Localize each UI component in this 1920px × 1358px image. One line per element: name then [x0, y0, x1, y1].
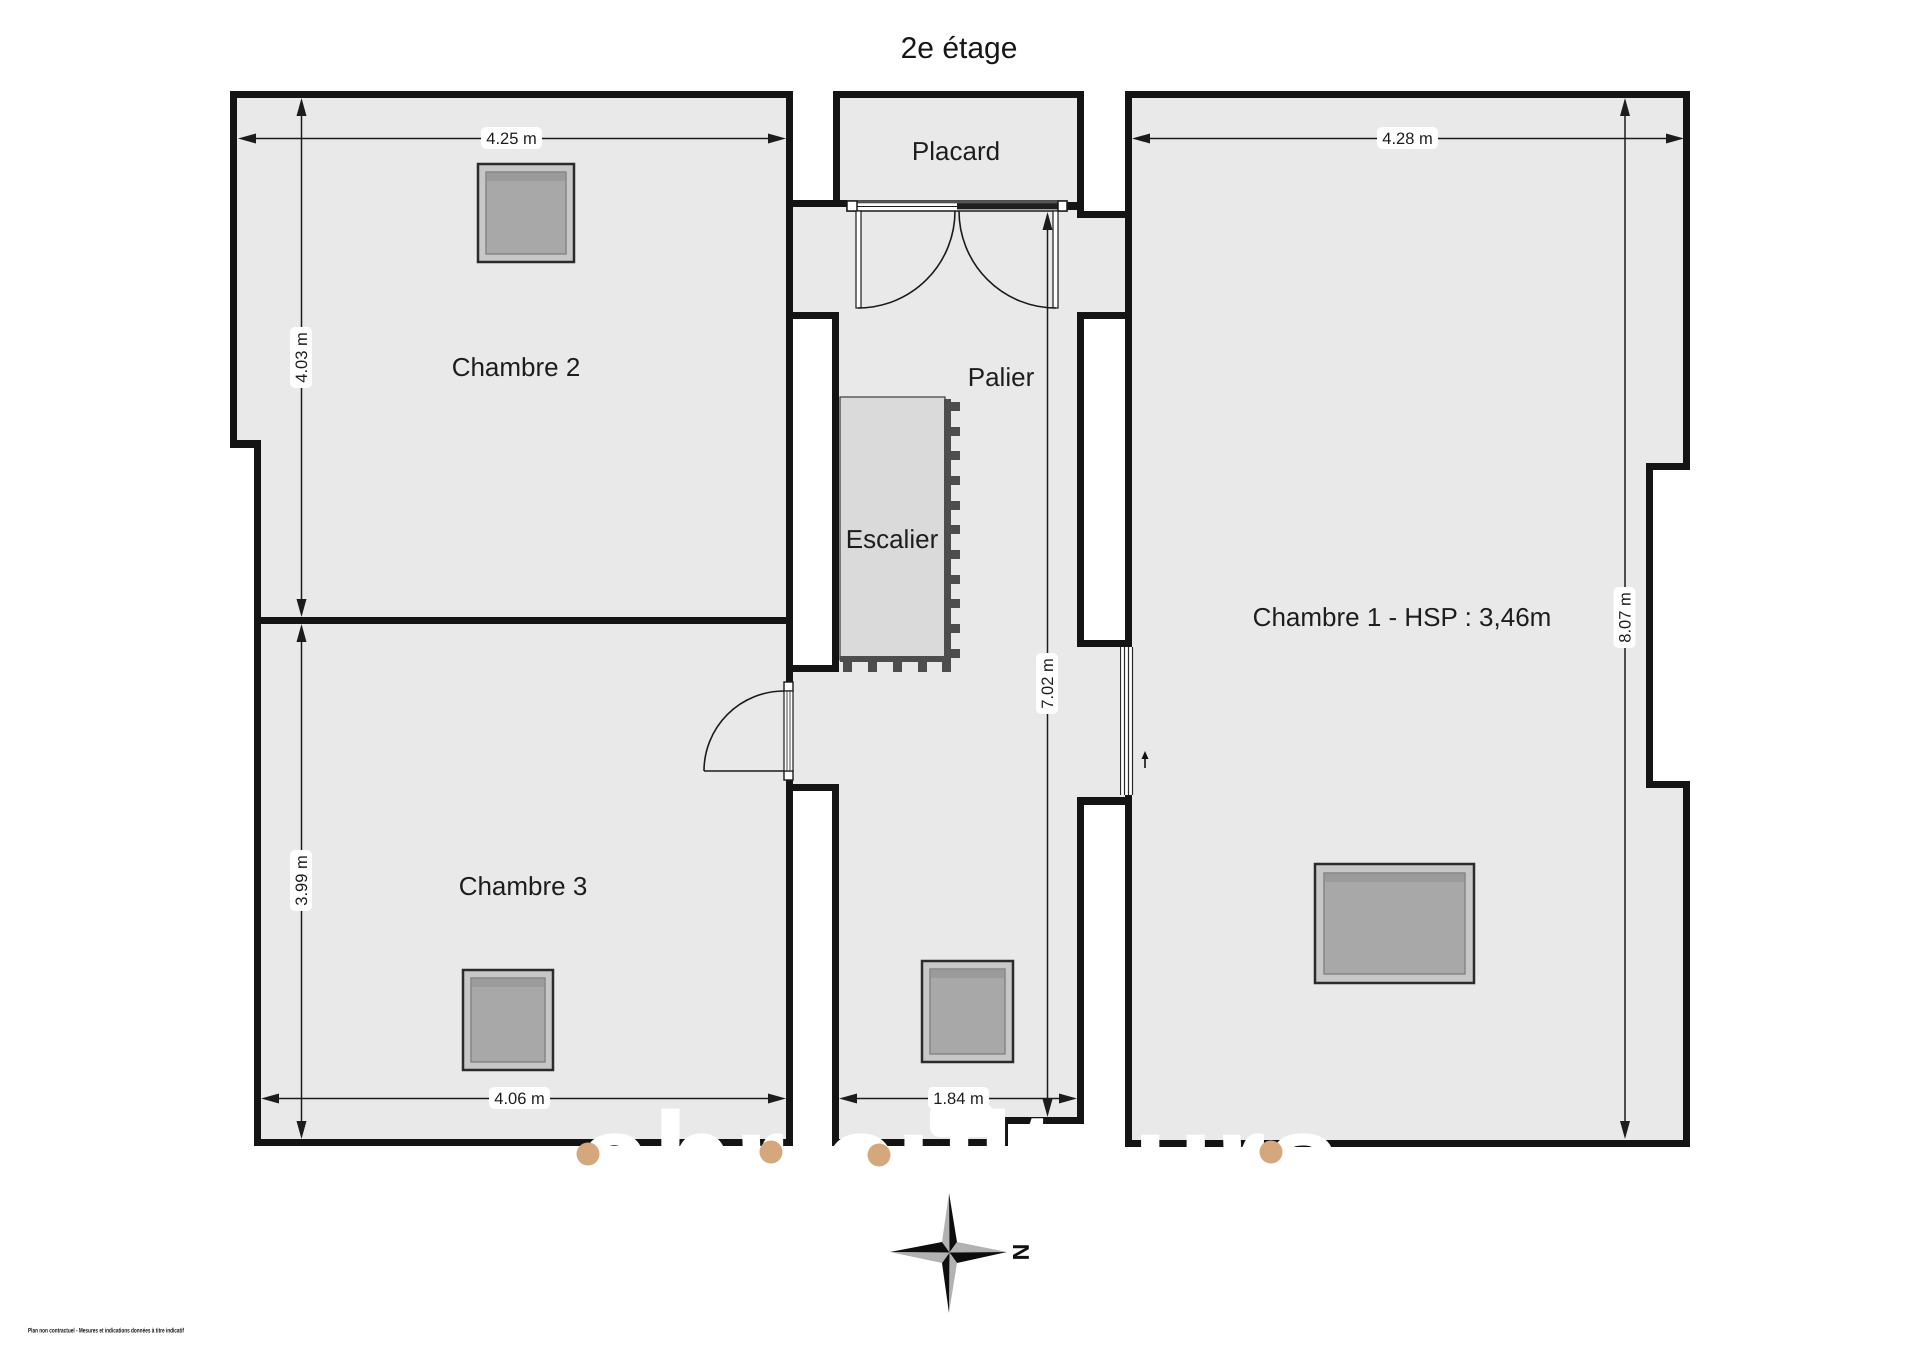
svg-text:4.06 m: 4.06 m: [494, 1090, 544, 1108]
svg-text:4.25 m: 4.25 m: [486, 130, 536, 148]
svg-text:Chambre 2: Chambre 2: [452, 352, 581, 382]
svg-text:Chambre 1 - HSP : 3,46m: Chambre 1 - HSP : 3,46m: [1253, 602, 1552, 632]
svg-text:4.03 m: 4.03 m: [293, 332, 311, 382]
svg-text:N: N: [1008, 1244, 1034, 1261]
svg-text:Plan non contractuel - Mesures: Plan non contractuel - Mesures et indica…: [28, 1328, 185, 1335]
svg-text:8.07 m: 8.07 m: [1617, 592, 1635, 642]
svg-text:7.02 m: 7.02 m: [1039, 658, 1057, 708]
svg-text:Placard: Placard: [912, 136, 1000, 166]
svg-text:3.99 m: 3.99 m: [293, 855, 311, 905]
svg-text:2e étage: 2e étage: [901, 32, 1018, 65]
svg-text:4.28 m: 4.28 m: [1382, 130, 1432, 148]
svg-text:Palier: Palier: [968, 362, 1035, 392]
svg-text:1.84 m: 1.84 m: [933, 1090, 983, 1108]
svg-text:Chambre 3: Chambre 3: [459, 871, 588, 901]
svg-text:Escalier: Escalier: [846, 524, 939, 554]
